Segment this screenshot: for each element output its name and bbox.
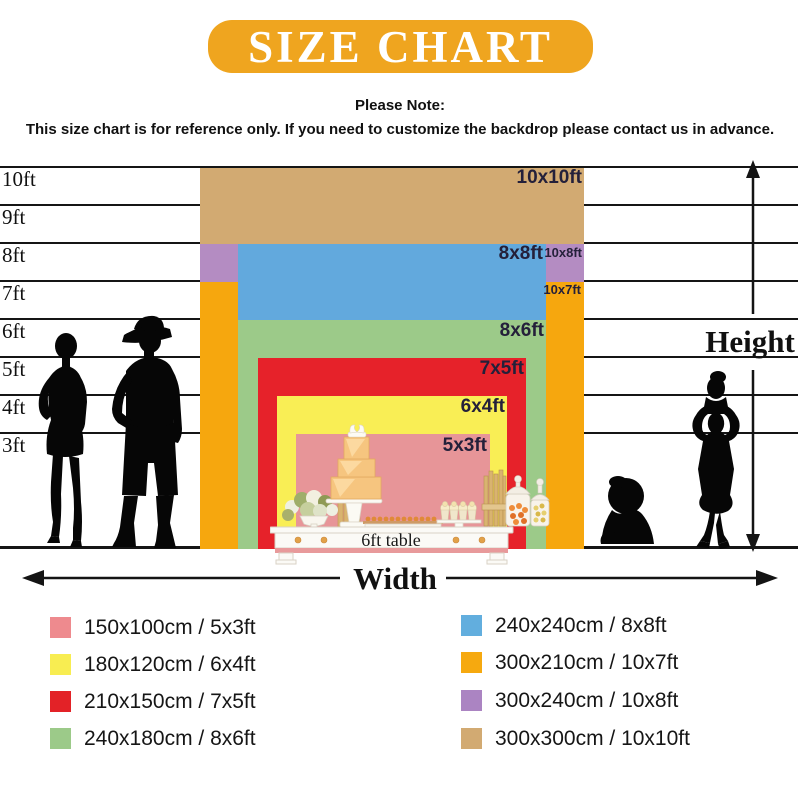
legend-label-8x8ft: 240x240cm / 8x8ft [495, 614, 667, 638]
label-8x8ft: 8x8ft [499, 244, 543, 263]
tick-9ft: 9ft [2, 207, 25, 228]
tick-8ft: 8ft [2, 245, 25, 266]
label-10x7ft: 10x7ft [543, 283, 581, 296]
legend-label-10x7ft: 300x210cm / 10x7ft [495, 651, 678, 675]
legend-label-5x3ft: 150x100cm / 5x3ft [84, 616, 256, 640]
legend-swatch-6x4ft [50, 654, 71, 675]
tick-3ft: 3ft [2, 435, 25, 456]
legend-swatch-5x3ft [50, 617, 71, 638]
legend-item-8x6ft: 240x180cm / 8x6ft [50, 727, 256, 750]
legend-swatch-8x6ft [50, 728, 71, 749]
legend-label-10x8ft: 300x240cm / 10x8ft [495, 689, 678, 713]
woman-silhouette-left-icon [31, 332, 97, 549]
disclaimer-text: This size chart is for reference only. I… [0, 121, 800, 138]
legend-label-7x5ft: 210x150cm / 7x5ft [84, 690, 256, 714]
title-banner: SIZE CHART [208, 20, 593, 73]
legend-item-8x8ft: 240x240cm / 8x8ft [461, 614, 667, 637]
legend-item-5x3ft: 150x100cm / 5x3ft [50, 616, 256, 639]
cupcakes [441, 501, 477, 520]
child-silhouette-icon [598, 474, 660, 549]
candy-jars [506, 476, 549, 527]
tick-6ft: 6ft [2, 321, 25, 342]
label-10x10ft: 10x10ft [517, 168, 583, 187]
legend-label-6x4ft: 180x120cm / 6x4ft [84, 653, 256, 677]
legend-swatch-10x8ft [461, 690, 482, 711]
legend-label-8x6ft: 240x180cm / 8x6ft [84, 727, 256, 751]
label-7x5ft: 7x5ft [480, 359, 524, 378]
candy-sticks-bundle [482, 470, 508, 526]
legend-swatch-8x8ft [461, 615, 482, 636]
legend-item-10x8ft: 300x240cm / 10x8ft [461, 689, 678, 712]
height-axis-label: Height [700, 324, 800, 360]
tick-7ft: 7ft [2, 283, 25, 304]
legend-label-10x10ft: 300x300cm / 10x10ft [495, 727, 690, 751]
tick-5ft: 5ft [2, 359, 25, 380]
legend-item-6x4ft: 180x120cm / 6x4ft [50, 653, 256, 676]
table-size-label: 6ft table [330, 530, 452, 551]
label-8x6ft: 8x6ft [500, 321, 544, 340]
cake-topper-swans [348, 425, 366, 437]
label-5x3ft: 5x3ft [443, 436, 487, 455]
man-silhouette-icon [106, 313, 198, 549]
legend-swatch-10x7ft [461, 652, 482, 673]
legend-swatch-7x5ft [50, 691, 71, 712]
legend-swatch-10x10ft [461, 728, 482, 749]
legend-item-7x5ft: 210x150cm / 7x5ft [50, 690, 256, 713]
please-note-heading: Please Note: [0, 97, 800, 114]
tick-4ft: 4ft [2, 397, 25, 418]
legend-item-10x7ft: 300x210cm / 10x7ft [461, 651, 678, 674]
woman-silhouette-right-icon [676, 371, 754, 549]
legend-item-10x10ft: 300x300cm / 10x10ft [461, 727, 690, 750]
size-chart-infographic: SIZE CHART Please Note: This size chart … [0, 0, 800, 800]
tick-10ft: 10ft [2, 169, 36, 190]
label-10x8ft: 10x8ft [544, 246, 582, 259]
label-6x4ft: 6x4ft [461, 397, 505, 416]
flower-bouquet [282, 490, 338, 531]
width-axis-label: Width [345, 561, 445, 597]
